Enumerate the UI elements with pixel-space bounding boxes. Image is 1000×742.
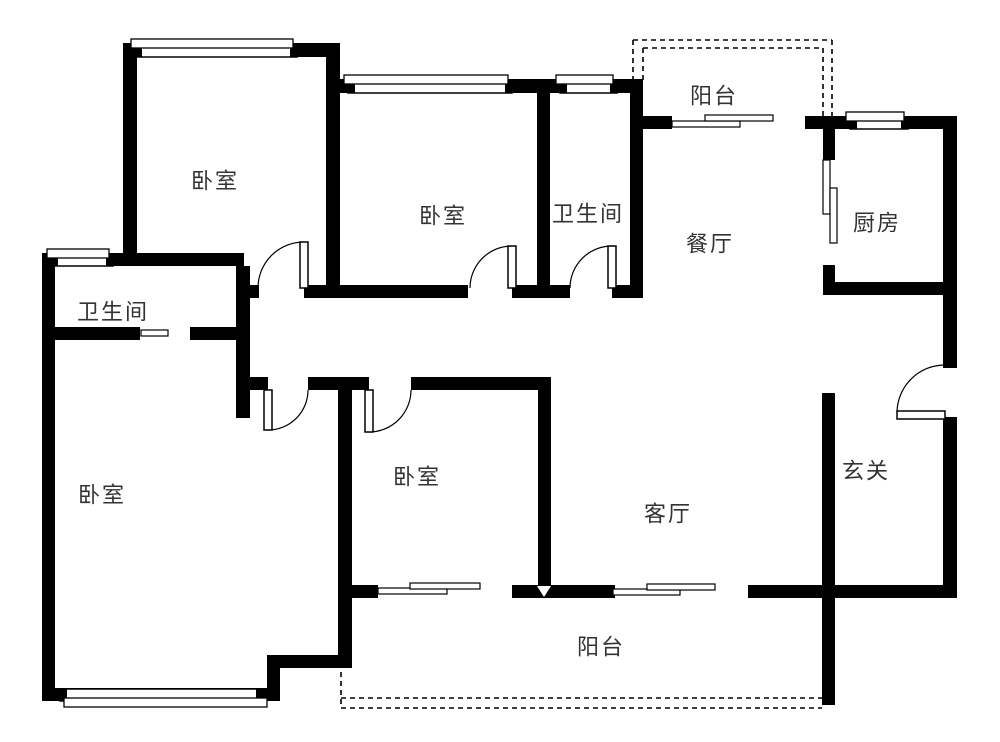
- slider-bedroom-balcony-b: [410, 583, 480, 589]
- room-label-bathroom-left: 卫生间: [77, 300, 149, 325]
- room-label-bedroom-top-middle: 卧室: [419, 204, 467, 229]
- wall-segment: [512, 585, 615, 598]
- floor-plan-svg: 卧室卧室卫生间阳台餐厅厨房卫生间卧室卧室客厅玄关阳台: [0, 0, 1000, 742]
- room-label-entry-hall: 玄关: [842, 459, 890, 484]
- wall-segment: [42, 253, 55, 701]
- slider-kitchen-a: [823, 160, 830, 214]
- wall-segment: [236, 266, 250, 418]
- door-entry-leaf: [897, 411, 945, 419]
- window-bedroom-master-frame: [64, 698, 267, 707]
- room-label-bathroom-top: 卫生间: [552, 202, 624, 227]
- slider-kitchen-b: [830, 188, 837, 243]
- wall-segment: [537, 93, 550, 297]
- window-bathroom-left-frame: [47, 249, 109, 258]
- wall-segment: [50, 327, 140, 340]
- window-bathroom-top-frame: [556, 75, 613, 84]
- door-bathroom-top-leaf: [608, 246, 616, 288]
- slider-dining-balcony-b: [705, 115, 773, 121]
- wall-segment: [943, 417, 957, 598]
- room-label-kitchen: 厨房: [853, 211, 901, 236]
- wall-segment: [943, 116, 957, 368]
- room-label-balcony-bottom: 阳台: [577, 635, 625, 660]
- wall-segment: [338, 377, 352, 663]
- room-label-bedroom-bottom-middle: 卧室: [393, 465, 441, 490]
- floor-plan: 卧室卧室卫生间阳台餐厅厨房卫生间卧室卧室客厅玄关阳台: [0, 0, 1000, 742]
- wall-segment: [326, 43, 340, 297]
- wall-segment: [338, 585, 378, 598]
- door-bedroom-top-left-leaf: [300, 242, 308, 288]
- room-label-dining-room: 餐厅: [686, 232, 734, 257]
- wall-segment: [630, 79, 643, 298]
- window-bedroom-top-left-frame: [131, 39, 293, 48]
- door-bedroom-master-leaf: [264, 390, 272, 430]
- slider-dining-balcony-a: [672, 121, 740, 127]
- wall-segment: [823, 282, 957, 295]
- wall-segment: [822, 393, 835, 705]
- room-label-bedroom-top-left: 卧室: [191, 169, 239, 194]
- wall-segment: [630, 116, 672, 129]
- door-bedroom-bottom-middle-leaf: [365, 390, 373, 432]
- wall-segment: [267, 655, 352, 668]
- room-label-living-room: 客厅: [644, 502, 692, 527]
- wall-segment: [823, 116, 835, 160]
- wall-segment: [123, 43, 137, 266]
- room-label-balcony-top: 阳台: [690, 84, 738, 109]
- wall-segment: [411, 377, 551, 390]
- window-kitchen-frame: [846, 112, 904, 121]
- slider-bathroom-left: [141, 330, 168, 336]
- wall-segment: [236, 377, 268, 390]
- wall-segment: [748, 585, 955, 598]
- wall-segment: [538, 377, 551, 597]
- room-label-bedroom-master: 卧室: [78, 483, 126, 508]
- door-bedroom-top-middle-leaf: [508, 246, 516, 288]
- window-bedroom-top-middle-frame: [344, 75, 508, 84]
- slider-living-balcony-b: [647, 584, 715, 590]
- plan-background: [0, 0, 1000, 742]
